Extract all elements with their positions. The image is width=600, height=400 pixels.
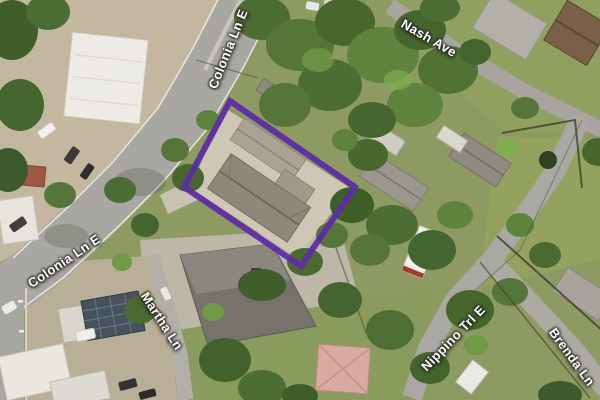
building-pink-hip-house: [315, 344, 370, 394]
aerial-imagery: [0, 0, 600, 400]
tree-shadow-on-road: [44, 224, 88, 248]
aerial-map-canvas[interactable]: Colonia Ln E Nash Ave Colonia Ln E Marth…: [0, 0, 600, 400]
building-top-left-white: [64, 32, 148, 123]
